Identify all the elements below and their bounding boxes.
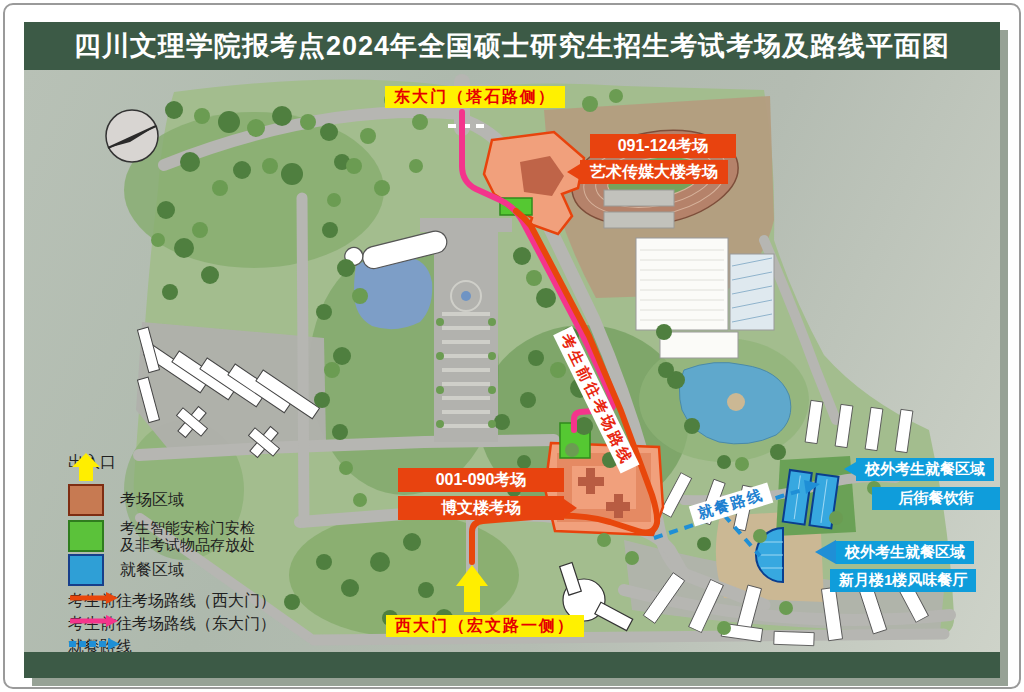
map-sheet: 四川文理学院报考点2024年全国硕士研究生招生考试考场及路线平面图 (24, 22, 1000, 678)
pointer-left-icon (567, 164, 580, 180)
bottom-bar (24, 652, 1000, 678)
west-route-arrow-icon (68, 591, 120, 605)
legend-item-route-west: 考生前往考场路线（西大门） (68, 591, 276, 612)
west-gate-label: 西大门（宏文路一侧） (386, 615, 584, 637)
dining-route-arrow-icon (68, 637, 122, 651)
dining-area2-name-label: 新月楼1楼风味餐厅 (830, 569, 976, 592)
dining-area1-name-label: 后街餐饮街 (872, 487, 1000, 510)
entrance-arrow-icon (68, 452, 104, 482)
bowen-building-label: 博文楼考场 (398, 496, 564, 520)
art-rooms-label: 091-124考场 (590, 134, 736, 158)
map-area: 东大门（塔石路侧） 091-124考场 艺术传媒大楼考场 考生前往考场路线 00… (24, 70, 1000, 652)
compass-icon (106, 110, 158, 162)
exam-area-swatch (68, 484, 104, 516)
checkpoint-swatch (68, 520, 104, 552)
pointer-left-icon (844, 462, 856, 476)
legend-item-entrance: 出入口 (68, 452, 116, 473)
title-bar: 四川文理学院报考点2024年全国硕士研究生招生考试考场及路线平面图 (24, 22, 1000, 70)
dining-area2-title-label: 校外考生就餐区域 (836, 541, 974, 564)
east-gate-label: 东大门（塔石路侧） (385, 86, 565, 108)
east-route-arrow-icon (68, 614, 120, 628)
pointer-right-icon (564, 499, 577, 517)
bowen-rooms-label: 001-090考场 (398, 468, 564, 492)
dining-area-swatch (68, 554, 104, 586)
legend-item-exam-area: 考场区域 (68, 484, 184, 516)
legend-item-route-dining: 就餐路线 (68, 637, 132, 652)
art-building-label: 艺术传媒大楼考场 (580, 160, 728, 184)
legend-item-dining-area: 就餐区域 (68, 554, 184, 586)
pointer-left-icon (815, 540, 836, 564)
map-title: 四川文理学院报考点2024年全国硕士研究生招生考试考场及路线平面图 (74, 28, 950, 64)
dining-area1-title-label: 校外考生就餐区域 (856, 458, 994, 481)
legend-item-checkpoint: 考生智能安检门安检 及非考试物品存放处 (68, 519, 255, 554)
legend-item-route-east: 考生前往考场路线（东大门） (68, 614, 276, 635)
